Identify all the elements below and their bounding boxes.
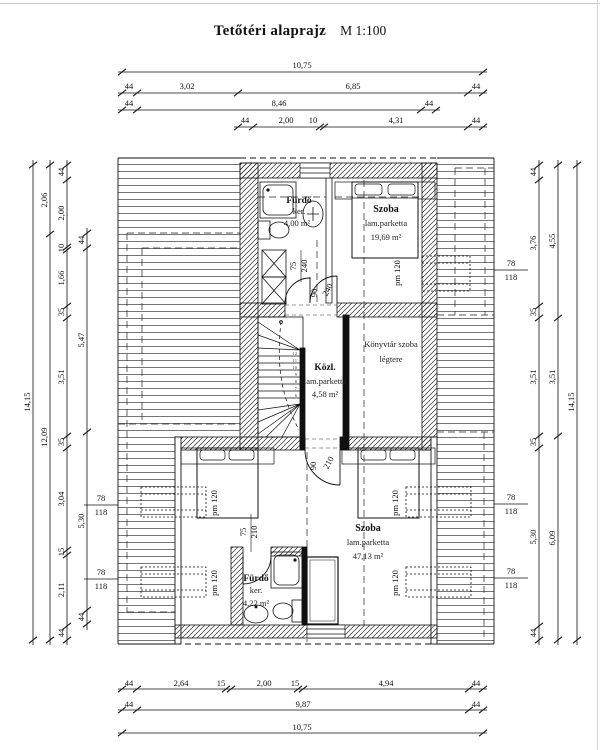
dim: 4,55: [547, 234, 557, 249]
dim: 8,46: [272, 98, 287, 108]
dim: 10: [56, 244, 66, 253]
parapet-label: pm 120: [209, 490, 219, 516]
dim: 14,15: [22, 392, 32, 411]
fraction-den: 118: [505, 580, 517, 590]
fraction-num: 78: [507, 566, 516, 576]
dim: 44: [472, 678, 481, 688]
door-bath-upper: [285, 277, 310, 303]
dim: 2,00: [257, 678, 272, 688]
fraction-den: 118: [505, 506, 517, 516]
parapet-label: pm 120: [392, 260, 402, 286]
fraction-right-3: 78 118: [494, 566, 528, 590]
step-number: 12: [293, 351, 298, 356]
room-name: Könyvtár szoba: [364, 339, 418, 349]
room-area: 4,00 m²: [284, 218, 311, 228]
fraction-den: 118: [505, 272, 517, 282]
dim: 2,06: [39, 193, 49, 208]
dim: 15: [291, 678, 300, 688]
staircase: [258, 317, 303, 437]
dim: 12,09: [39, 427, 49, 446]
dim: 2,11: [56, 583, 66, 598]
dim: 5,47: [76, 333, 86, 348]
dim: 2,64: [174, 678, 190, 688]
fraction-num: 78: [507, 492, 516, 502]
dim: 1,66: [56, 271, 66, 286]
dimension-texts-top: 10,75 44 3,02 6,85 44 44 8,46 44 44 2,00…: [125, 60, 481, 125]
dim: 3,76: [528, 236, 538, 251]
dim: 6,09: [547, 531, 557, 546]
dim: 10,75: [292, 722, 311, 732]
room-finish: lam.parketta: [365, 218, 407, 228]
dim: 44: [56, 167, 66, 176]
room-finish: lam.parketta: [347, 537, 389, 547]
step-number: 11: [293, 358, 297, 363]
door-width: 75: [288, 262, 298, 271]
fraction-den: 118: [95, 507, 107, 517]
door-width: 90: [309, 289, 319, 298]
dim: 15: [56, 548, 66, 557]
dim: 44: [472, 115, 481, 125]
dim: 5,30: [528, 530, 538, 545]
door-height: 240: [320, 282, 335, 298]
dim: 3,04: [56, 491, 66, 507]
floor-plan-drawing: 12 11 10 9 8 7 6: [0, 0, 600, 750]
room-finish: ker.: [250, 585, 263, 595]
room-finish: ker.: [293, 206, 306, 216]
fraction-left-2: 78 118: [84, 567, 118, 591]
parapet-label: pm 120: [209, 570, 219, 596]
dim: 9,87: [296, 699, 311, 709]
room-name: Fürdő: [286, 196, 312, 206]
dim: 44: [528, 628, 538, 637]
door-width: 75: [238, 528, 248, 537]
door-width: 90: [308, 462, 318, 471]
bath-upper-fixtures: [258, 182, 323, 239]
dim: 44: [472, 81, 481, 91]
dimension-texts-left: 14,15 2,06 12,09 44 2,00 10 1,66 35 3,51…: [22, 167, 86, 637]
floor-plan-page: Tetőtéri alaprajzM 1:100: [0, 0, 600, 750]
dim: 3,02: [180, 81, 195, 91]
dim: 3,51: [547, 370, 557, 385]
dim: 44: [125, 81, 134, 91]
dim: 35: [56, 438, 66, 447]
fraction-right-2: 78 118: [494, 492, 528, 516]
dim: 14,15: [566, 392, 576, 411]
dim: 44: [125, 678, 134, 688]
dimension-texts-right: 44 3,76 35 3,51 35 5,30 44 4,55 3,51 6,0…: [528, 167, 576, 637]
fraction-den: 118: [95, 581, 107, 591]
dim: 44: [125, 699, 134, 709]
dim: 4,94: [379, 678, 395, 688]
dim: 15: [217, 678, 226, 688]
dim: 3,51: [56, 370, 66, 385]
chimney-shaft: [262, 250, 286, 304]
step-number: 7: [295, 386, 298, 391]
door-height: 210: [249, 526, 259, 539]
dim: 6,85: [346, 81, 361, 91]
dim: 5,30: [76, 514, 86, 529]
dimension-texts-bottom: 44 2,64 15 2,00 15 4,94 44 44 9,87 44 10…: [125, 678, 481, 732]
parapet-label: pm 120: [390, 570, 400, 596]
room-name: Közl.: [314, 363, 335, 373]
room-name: Szoba: [373, 204, 399, 215]
dim: 44: [528, 167, 538, 176]
wardrobe: [307, 557, 338, 624]
step-number: 6: [295, 393, 298, 398]
dim: 3,51: [528, 370, 538, 385]
dim: 10: [309, 115, 318, 125]
room-finish: lam.parketta: [304, 376, 346, 386]
bed-lower-left: [181, 448, 274, 518]
dim: 4,31: [389, 115, 404, 125]
room-area: 4,22 m²: [243, 598, 270, 608]
dim: 44: [76, 612, 86, 621]
toilet-tank: [258, 221, 270, 239]
toilet-tank: [292, 600, 302, 622]
dim: 44: [125, 98, 134, 108]
room-area: 19,69 m²: [371, 232, 402, 242]
room-name: Fürdő: [243, 574, 269, 584]
door-height: 210: [321, 455, 336, 471]
fraction-num: 78: [97, 567, 106, 577]
step-number: 9: [295, 372, 298, 377]
dim: 2,00: [56, 206, 66, 221]
dim: 2,00: [279, 115, 294, 125]
room-name-2: légtere: [379, 354, 402, 364]
fraction-num: 78: [507, 258, 516, 268]
room-area: 47,13 m²: [353, 551, 384, 561]
fraction-left-1: 78 118: [84, 493, 118, 517]
parapet-label: pm 120: [390, 490, 400, 516]
room-name: Szoba: [355, 523, 381, 534]
room-area: 4,58 m²: [312, 389, 339, 399]
fraction-right-1: 78 118: [494, 258, 528, 282]
toilet-bowl: [273, 603, 293, 619]
step-number: 8: [295, 379, 298, 384]
door-height: 240: [299, 260, 309, 273]
dim: 35: [528, 308, 538, 317]
step-number: 10: [293, 365, 298, 370]
fraction-num: 78: [97, 493, 106, 503]
dim: 44: [56, 628, 66, 637]
dim: 44: [472, 699, 481, 709]
dim: 44: [76, 235, 86, 244]
dim: 44: [241, 115, 250, 125]
dim: 35: [56, 308, 66, 317]
bed-lower-right: [342, 448, 435, 518]
dim: 44: [425, 98, 434, 108]
dim: 10,75: [292, 60, 311, 70]
dim: 35: [528, 438, 538, 447]
